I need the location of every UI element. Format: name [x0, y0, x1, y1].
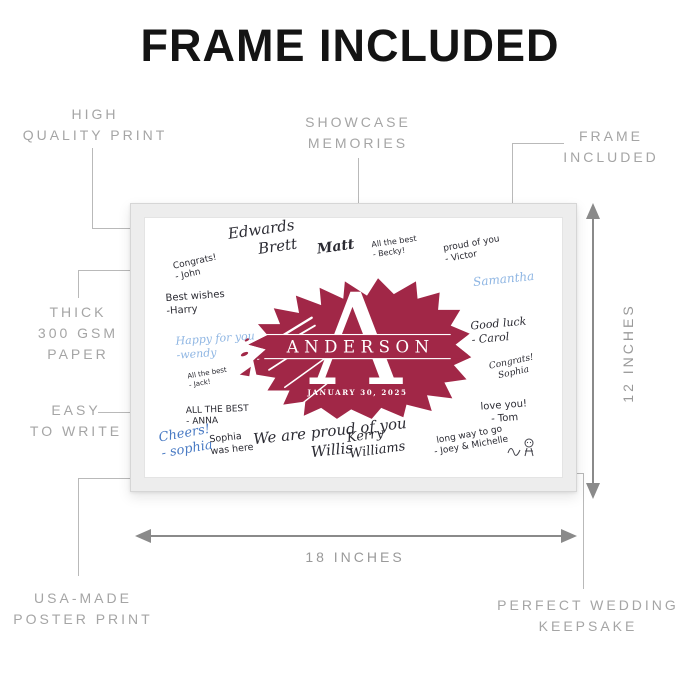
guestbook-poster: A ANDERSON JANUARY 30, 2025 Congrats! - …: [144, 217, 563, 478]
callout-line: EASY: [12, 400, 140, 421]
family-name: ANDERSON: [286, 338, 435, 357]
signature: Congrats! - John: [172, 253, 220, 284]
signature: proud of you - Victor: [442, 234, 502, 266]
connector-line: [78, 478, 132, 479]
callout-line: POSTER PRINT: [4, 609, 162, 630]
connector-line: [92, 228, 131, 229]
band-rule-bottom: [264, 358, 450, 359]
connector-line: [512, 143, 513, 204]
signature: Cheers! - sophia: [158, 422, 215, 463]
product-infographic: FRAME INCLUDED HIGH QUALITY PRINT SHOWCA…: [0, 0, 700, 700]
callout-line: KEEPSAKE: [486, 616, 690, 637]
callout-thick-paper: THICK 300 GSM PAPER: [16, 302, 140, 365]
callout-line: USA-MADE: [4, 588, 162, 609]
signature: All the best - Jack!: [187, 366, 229, 390]
signature: Kerry Williams: [346, 423, 406, 463]
width-dimension-arrow: [133, 527, 579, 545]
callout-line: QUALITY PRINT: [10, 125, 180, 146]
connector-line: [78, 478, 79, 576]
connector-line: [512, 143, 564, 144]
callout-usa-made: USA-MADE POSTER PRINT: [4, 588, 162, 630]
signature: Samantha: [472, 269, 535, 290]
callout-line: TO WRITE: [12, 421, 140, 442]
signature: Matt: [316, 236, 356, 259]
signature: long way to go - Joey & Michelle: [432, 424, 510, 459]
callout-line: PAPER: [16, 344, 140, 365]
signature: Edwards Brett: [216, 216, 298, 264]
signature: Happy for you -wendy: [175, 329, 256, 362]
picture-frame: A ANDERSON JANUARY 30, 2025 Congrats! - …: [130, 203, 577, 492]
callout-line: 300 GSM: [16, 323, 140, 344]
connector-line: [98, 412, 133, 413]
height-dimension-label: 12 INCHES: [620, 253, 640, 453]
paint-splash-monogram: A ANDERSON JANUARY 30, 2025: [239, 271, 476, 423]
event-date: JANUARY 30, 2025: [306, 388, 407, 397]
page-title: FRAME INCLUDED: [0, 20, 700, 72]
connector-line: [92, 148, 93, 228]
smiley-doodle-signature: [506, 437, 538, 459]
callout-line: FRAME: [556, 126, 666, 147]
callout-easy-to-write: EASY TO WRITE: [12, 400, 140, 442]
callout-wedding-keepsake: PERFECT WEDDING KEEPSAKE: [486, 595, 690, 637]
signature: Sophia was here: [209, 430, 254, 458]
signature: Best wishes -Harry: [165, 289, 226, 318]
callout-line: SHOWCASE: [276, 112, 440, 133]
callout-high-quality-print: HIGH QUALITY PRINT: [10, 104, 180, 146]
callout-frame-included: FRAME INCLUDED: [556, 126, 666, 168]
signature: love you! - Tom: [480, 398, 528, 426]
callout-line: MEMORIES: [276, 133, 440, 154]
signature: All the best - Becky!: [371, 234, 419, 260]
callout-showcase-memories: SHOWCASE MEMORIES: [276, 112, 440, 154]
callout-line: HIGH: [10, 104, 180, 125]
signature: Congrats! Sophia: [488, 353, 537, 384]
width-dimension-label: 18 INCHES: [255, 549, 455, 565]
paint-speck: [240, 367, 251, 376]
connector-line: [78, 270, 79, 298]
callout-line: PERFECT WEDDING: [486, 595, 690, 616]
band-rule-top: [264, 334, 450, 335]
callout-line: INCLUDED: [556, 147, 666, 168]
signature: Good luck - Carol: [470, 315, 528, 347]
connector-line: [358, 158, 359, 205]
height-dimension-arrow: [584, 201, 602, 501]
connector-line: [78, 270, 132, 271]
callout-line: THICK: [16, 302, 140, 323]
